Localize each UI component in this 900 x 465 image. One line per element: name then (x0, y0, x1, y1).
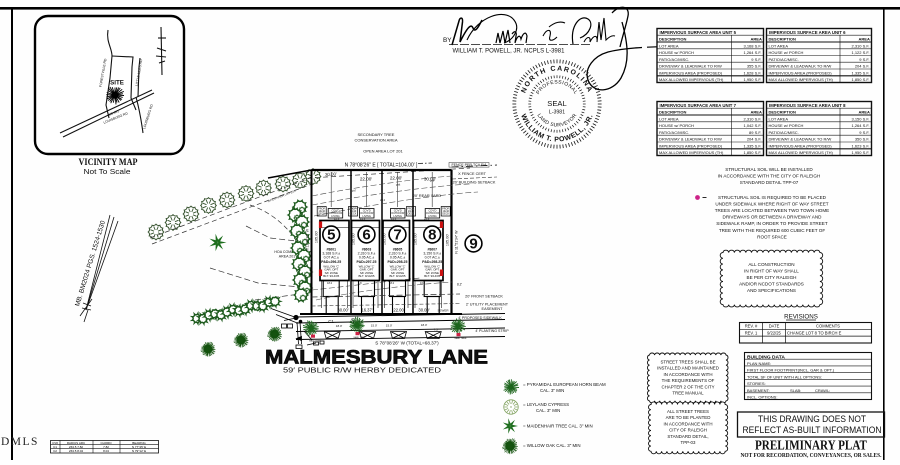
svg-text:6.8: 6.8 (358, 281, 362, 285)
svg-text:MAX ALLOWED IMPERVIOUS (TH): MAX ALLOWED IMPERVIOUS (TH) (769, 150, 834, 155)
svg-text:STREET TREES SHALL BE: STREET TREES SHALL BE (660, 360, 715, 365)
svg-text:S 78°08'26" W (TOTAL=68.37': S 78°08'26" W (TOTAL=68.37') (375, 340, 439, 345)
svg-text:8.04: 8.04 (103, 449, 109, 453)
svg-text:SEWER: SEWER (437, 309, 449, 313)
svg-text:CRAWL:: CRAWL: (815, 388, 830, 393)
svg-text:BUILDING DATA: BUILDING DATA (747, 354, 785, 360)
svg-text:C1: C1 (328, 319, 334, 324)
svg-text:89 S.F.: 89 S.F. (749, 130, 761, 135)
svg-text:22.00': 22.00' (360, 176, 372, 181)
svg-text:= PYRAMIDAL EUROPEAN HORN: = PYRAMIDAL EUROPEAN HORN BEAM (523, 382, 606, 387)
svg-text:ROOT SPACE: ROOT SPACE (757, 234, 787, 239)
svg-text:105.00': 105.00' (352, 233, 356, 246)
svg-text:1,628 S.F.: 1,628 S.F. (743, 70, 761, 75)
svg-text:CITY OF RALEIGH: CITY OF RALEIGH (669, 428, 707, 433)
svg-text:AND/OR NCDOT STANDARDS: AND/OR NCDOT STANDARDS (739, 282, 804, 287)
svg-text:DMLS: DMLS (1, 436, 39, 448)
svg-text:LOT AREA: LOT AREA (659, 43, 679, 48)
svg-text:204 S.F.: 204 S.F. (855, 64, 870, 69)
svg-text:HOUSE w/ PORCH: HOUSE w/ PORCH (769, 123, 804, 128)
svg-text:MAX ALLOWED IMPERVIOUS (TH): MAX ALLOWED IMPERVIOUS (TH) (769, 77, 834, 82)
svg-text:9/22/25: 9/22/25 (767, 330, 781, 335)
svg-text:355 S.F.: 355 S.F. (747, 64, 762, 69)
svg-text:BLT: 9/14/05: BLT: 9/14/05 (389, 274, 405, 278)
svg-text:21.3: 21.3 (391, 216, 397, 220)
svg-text:LOT AREA: LOT AREA (769, 43, 789, 48)
svg-text:7: 7 (393, 227, 401, 244)
svg-text:2,310 S.F.: 2,310 S.F. (743, 116, 761, 121)
svg-text:Not To Scale: Not To Scale (84, 169, 131, 176)
svg-text:FENCE PER TCA F/A: FENCE PER TCA F/A (451, 163, 487, 167)
svg-text:1,264 S.F.: 1,264 S.F. (743, 50, 761, 55)
svg-text:BLT: 9/14/05: BLT: 9/14/05 (358, 274, 374, 278)
svg-text:18.0': 18.0' (336, 324, 343, 328)
svg-text:REFLECT AS-BUILT INFORMATION: REFLECT AS-BUILT INFORMATION (743, 425, 882, 436)
svg-text:LIVING: LIVING (428, 214, 437, 218)
svg-text:DRIVEWAY & LEADWALK TO R/W: DRIVEWAY & LEADWALK TO R/W (769, 64, 832, 69)
svg-text:BLT: 9/14/05: BLT: 9/14/05 (323, 274, 339, 278)
svg-text:MAID TREE: MAID TREE (455, 337, 467, 340)
svg-text:30.00': 30.00' (418, 308, 429, 313)
svg-text:4' PROPOSED SIDEWALK: 4' PROPOSED SIDEWALK (458, 316, 502, 320)
svg-text:MAX ALLOWED IMPERVIOUS (TH): MAX ALLOWED IMPERVIOUS (TH) (659, 77, 724, 82)
svg-text:16.2: 16.2 (420, 281, 426, 285)
svg-text:STANDARD DETAIL TPP-07: STANDARD DETAIL TPP-07 (740, 180, 799, 185)
svg-text:TPP-03: TPP-03 (681, 440, 696, 445)
svg-text:N 11°51'34" W: N 11°51'34" W (455, 230, 459, 254)
svg-text:THE REQUIREMENTS OF: THE REQUIREMENTS OF (662, 378, 715, 383)
svg-text:30.00': 30.00' (424, 176, 436, 181)
svg-text:105.00': 105.00' (383, 233, 387, 246)
svg-text:5: 5 (327, 227, 335, 244)
svg-text:DRIVEWAY & LEADWALK TO R/W: DRIVEWAY & LEADWALK TO R/W (769, 137, 832, 142)
svg-text:25.3: 25.3 (424, 216, 430, 220)
svg-text:IMPERVIOUS AREA (PROPOSED): IMPERVIOUS AREA (PROPOSED) (659, 70, 723, 75)
svg-text:15.0': 15.0' (386, 323, 393, 327)
svg-text:CONSERVATION AREA: CONSERVATION AREA (354, 138, 397, 143)
svg-text:18.2: 18.2 (327, 281, 333, 285)
svg-text:CHANGE LOT 8 TO BIRCH E: CHANGE LOT 8 TO BIRCH E (787, 330, 842, 335)
svg-text:9 S.F.: 9 S.F. (859, 57, 869, 62)
svg-text:8: 8 (428, 227, 436, 244)
svg-text:105.00': 105.00' (315, 231, 319, 244)
svg-text:DESCRIPTION: DESCRIPTION (659, 37, 686, 42)
svg-text:= LEYLAND CYPRESS: = LEYLAND CYPRESS (523, 402, 569, 407)
svg-text:= MAIDENHAIR TREE CAL. 3": = MAIDENHAIR TREE CAL. 3" MIN (523, 424, 593, 429)
svg-text:PLAN NAME:: PLAN NAME: (747, 361, 771, 366)
svg-text:6: 6 (362, 227, 370, 244)
svg-text:IMPERVIOUS SURFACE AREA UNI: IMPERVIOUS SURFACE AREA UNIT 5 (660, 30, 737, 35)
svg-text:AREA: AREA (859, 37, 870, 42)
svg-text:PATIO/AC/MISC.: PATIO/AC/MISC. (659, 57, 689, 62)
svg-text:MAID TREE: MAID TREE (354, 336, 366, 339)
svg-text:IN ACCORDANCE WITH: IN ACCORDANCE WITH (663, 372, 712, 377)
svg-text:DECK: DECK (350, 213, 357, 216)
svg-text:DESCRIPTION: DESCRIPTION (769, 37, 796, 42)
svg-text:1,335 S.F.: 1,335 S.F. (851, 70, 869, 75)
svg-text:30.00': 30.00' (337, 308, 348, 313)
svg-text:VICINITY MAP: VICINITY MAP (79, 157, 138, 167)
svg-text:1,623 S.F.: 1,623 S.F. (851, 143, 869, 148)
svg-text:TOTAL SF OF UNIT WITH ALL OPTI: TOTAL SF OF UNIT WITH ALL OPTIONS: (747, 374, 822, 379)
svg-text:IMPERVIOUS AREA (PROPOSED): IMPERVIOUS AREA (PROPOSED) (769, 70, 833, 75)
svg-text:PAD=296.25: PAD=296.25 (321, 260, 341, 264)
svg-text:PAD=298.25: PAD=298.25 (422, 260, 442, 264)
svg-text:18.2: 18.2 (389, 281, 395, 285)
svg-text:PRELIMINARY PLAT: PRELIMINARY PLAT (755, 438, 867, 453)
svg-text:AREA 201: AREA 201 (279, 255, 296, 259)
svg-text:AREA: AREA (859, 110, 870, 115)
svg-text:1,122 S.F.: 1,122 S.F. (851, 50, 869, 55)
svg-text:WILLIAM T. POWELL, JR. NCP: WILLIAM T. POWELL, JR. NCPLS L-3981 (453, 49, 566, 55)
svg-text:2,310 S.F.: 2,310 S.F. (851, 43, 869, 48)
svg-text:SIDEWALK RAMP, IN ORDER TO: SIDEWALK RAMP, IN ORDER TO PROVIDE STREE… (716, 221, 828, 226)
svg-text:REVISIONS: REVISIONS (784, 314, 818, 321)
svg-text:SLAB:: SLAB: (790, 388, 801, 393)
svg-text:INCL. OPTIONS:: INCL. OPTIONS: (747, 395, 777, 400)
svg-text:1,950 S.F.: 1,950 S.F. (851, 150, 869, 155)
svg-text:COMMENTS: COMMENTS (816, 324, 840, 329)
svg-text:59′ PUBLIC R/W HERBY DED: 59′ PUBLIC R/W HERBY DEDICATED (283, 365, 441, 374)
svg-text:HOUSE w/ PORCH: HOUSE w/ PORCH (659, 123, 694, 128)
svg-text:204 S.F.: 204 S.F. (747, 137, 762, 142)
svg-text:SECONDARY TREE: SECONDARY TREE (358, 132, 395, 137)
svg-text:4' PLANTING STRIP: 4' PLANTING STRIP (475, 329, 509, 333)
svg-text:22.00': 22.00' (393, 308, 404, 313)
svg-text:DRIVEWAYS OR BETWEEN A DRI: DRIVEWAYS OR BETWEEN A DRIVEWAY AND (723, 215, 823, 220)
svg-text:DESCRIPTION: DESCRIPTION (659, 110, 686, 115)
svg-text:350 S.F.: 350 S.F. (855, 137, 870, 142)
svg-text:CHAPTER 2 OF THE CITY: CHAPTER 2 OF THE CITY (661, 384, 714, 389)
svg-text:1,950 S.F.: 1,950 S.F. (743, 77, 761, 82)
svg-text:IN RIGHT OF WAY SHALL: IN RIGHT OF WAY SHALL (744, 269, 799, 274)
svg-text:HOUSE w/ PORCH: HOUSE w/ PORCH (659, 50, 694, 55)
svg-text:CAL. 3" MIN: CAL. 3" MIN (536, 408, 560, 413)
svg-text:105.00': 105.00' (446, 234, 450, 247)
svg-text:STORIES:: STORIES: (747, 381, 766, 386)
svg-text:INSTALLED AND MAINTAINED: INSTALLED AND MAINTAINED (657, 366, 719, 371)
svg-text:STRUCTURAL SOIL IS REQUIRED: STRUCTURAL SOIL IS REQUIRED TO BE PLACED (718, 195, 827, 200)
svg-text:STANDARD DETAIL,: STANDARD DETAIL, (667, 434, 708, 439)
svg-text:EASEMENT: EASEMENT (482, 307, 504, 311)
svg-text:BY: BY (443, 37, 452, 44)
svg-text:21.3: 21.3 (360, 216, 366, 220)
svg-text:X FENCE CERT: X FENCE CERT (458, 172, 486, 176)
svg-text:L-3981: L-3981 (549, 110, 565, 116)
svg-text:PATIO/AC/MISC.: PATIO/AC/MISC. (769, 130, 799, 135)
svg-text:DRIVEWAY & LEADWALK TO R/W: DRIVEWAY & LEADWALK TO R/W (659, 64, 722, 69)
svg-text:STRUCTURAL SOIL WILL BE IN: STRUCTURAL SOIL WILL BE INSTALLED (725, 167, 813, 172)
svg-text:N 11°30'46" W: N 11°30'46" W (306, 228, 310, 251)
svg-text:DRIVEWAY & LEADWALK TO R/W: DRIVEWAY & LEADWALK TO R/W (659, 137, 722, 142)
svg-text:AND SPECIFICATIONS: AND SPECIFICATIONS (747, 288, 796, 293)
svg-text:C2: C2 (53, 449, 57, 453)
svg-text:9: 9 (469, 236, 477, 253)
svg-text:IMPERVIOUS AREA (PROPOSED): IMPERVIOUS AREA (PROPOSED) (769, 143, 833, 148)
svg-text:ALL CONSTRUCTION: ALL CONSTRUCTION (748, 262, 794, 267)
svg-text:7.5': 7.5' (434, 328, 439, 332)
svg-text:UNDER SIDEWALK WHERE RIGHT: UNDER SIDEWALK WHERE RIGHT OF WAY STREET (715, 202, 828, 207)
svg-text:BASEMENT:: BASEMENT: (747, 388, 770, 393)
svg-text:ALL STREET TREES: ALL STREET TREES (667, 409, 709, 414)
svg-text:LOT AREA: LOT AREA (769, 116, 789, 121)
svg-text:DECK: DECK (318, 213, 325, 216)
svg-text:9 S.F.: 9 S.F. (751, 57, 761, 62)
svg-text:9 S.F.: 9 S.F. (859, 130, 869, 135)
svg-text:2' UTILITY PLACEMENT: 2' UTILITY PLACEMENT (466, 303, 509, 307)
svg-text:8.2′: 8.2′ (457, 283, 462, 287)
svg-text:1,042 S.F.: 1,042 S.F. (743, 123, 761, 128)
svg-text:CAL. 3" MIN: CAL. 3" MIN (540, 388, 564, 393)
svg-text:HOUSE w/ PORCH: HOUSE w/ PORCH (769, 50, 804, 55)
svg-text:TREE WITH THE REQUIRED 600: TREE WITH THE REQUIRED 600 CUBIC FEET OF (719, 228, 825, 233)
svg-text:20' BUILDING SETBACK: 20' BUILDING SETBACK (453, 181, 496, 185)
svg-text:IMPERVIOUS SURFACE AREA UNI: IMPERVIOUS SURFACE AREA UNIT 6 (769, 30, 846, 35)
svg-text:30.00': 30.00' (325, 171, 337, 177)
svg-text:MAX ALLOWED IMPERVIOUS (TH): MAX ALLOWED IMPERVIOUS (TH) (659, 150, 724, 155)
svg-text:ARE TO BE PLANTED: ARE TO BE PLANTED (666, 415, 711, 420)
svg-text:LOT AREA: LOT AREA (659, 116, 679, 121)
svg-text:= WILLOW OAK CAL. 3" MIN: = WILLOW OAK CAL. 3" MIN (523, 443, 581, 448)
svg-text:TREES ARE LOCATED BETWEEN: TREES ARE LOCATED BETWEEN TWO TOWN HOME (715, 208, 830, 213)
svg-text:DECK: DECK (408, 213, 415, 216)
svg-text:AREA: AREA (751, 37, 762, 42)
svg-text:REV. 1: REV. 1 (745, 330, 758, 335)
svg-text:18.0': 18.0' (421, 323, 428, 327)
svg-text:29.2: 29.2 (380, 198, 386, 202)
svg-text:PAD=298.25: PAD=298.25 (388, 260, 408, 264)
svg-text:FIRST FLOOR FOOTPRINT(INCL. GA: FIRST FLOOR FOOTPRINT(INCL. GAR & OPT.) (747, 368, 835, 373)
svg-text:THIS DRAWING DOES NOT: THIS DRAWING DOES NOT (758, 414, 866, 425)
svg-text:263.5 8.04: 263.5 8.04 (69, 449, 84, 453)
svg-text:DATE: DATE (769, 324, 780, 329)
svg-text:1,850 S.F.: 1,850 S.F. (743, 150, 761, 155)
svg-text:PAD=297.25: PAD=297.25 (357, 260, 377, 264)
svg-text:IMPERVIOUS SURFACE AREA UNI: IMPERVIOUS SURFACE AREA UNIT 7 (660, 103, 737, 108)
svg-text:SEAL: SEAL (547, 99, 566, 108)
svg-text:3,150 S.F.: 3,150 S.F. (851, 116, 869, 121)
svg-text:25.3: 25.3 (334, 216, 340, 220)
svg-text:DESCRIPTION: DESCRIPTION (769, 110, 796, 115)
svg-text:IMPERVIOUS AREA (PROPOSED): IMPERVIOUS AREA (PROPOSED) (659, 143, 723, 148)
svg-text:1,264 S.F.: 1,264 S.F. (851, 123, 869, 128)
svg-text:N 78°08'26" E [ TOTAL=104.0: N 78°08'26" E [ TOTAL=104.00' ] (345, 163, 418, 169)
svg-text:20' FRONT SETBACK: 20' FRONT SETBACK (465, 295, 503, 299)
svg-text:OPEN AREA LOT 201: OPEN AREA LOT 201 (363, 149, 403, 154)
svg-text:20' REAR YARD: 20' REAR YARD (413, 193, 442, 198)
svg-text:MAID TREE: MAID TREE (309, 340, 321, 343)
svg-text:N 79°12′ E: N 79°12′ E (132, 449, 146, 453)
svg-text:IN ACCORDANCE WITH THE CIT: IN ACCORDANCE WITH THE CITY OF RALEIGH (718, 174, 820, 179)
svg-text:22.00': 22.00' (390, 175, 402, 180)
svg-text:SITE: SITE (110, 80, 124, 87)
svg-text:3,168 S.F.: 3,168 S.F. (743, 43, 761, 48)
svg-text:16.37': 16.37' (361, 308, 372, 313)
svg-text:1,850 S.F.: 1,850 S.F. (851, 77, 869, 82)
svg-text:IN ACCORDANCE WITH: IN ACCORDANCE WITH (663, 421, 712, 426)
svg-text:PATIO/AC/MISC.: PATIO/AC/MISC. (659, 130, 689, 135)
svg-text:BLT: 9/14/05: BLT: 9/14/05 (424, 274, 440, 278)
svg-text:1,335 S.F.: 1,335 S.F. (743, 143, 761, 148)
svg-text:TREE MANUAL: TREE MANUAL (672, 391, 704, 396)
svg-text:BE PER CITY RALEIGH: BE PER CITY RALEIGH (747, 275, 797, 280)
svg-text:AREA: AREA (751, 110, 762, 115)
svg-text:PATIO/AC/MISC.: PATIO/AC/MISC. (769, 57, 799, 62)
svg-text:105.00': 105.00' (414, 233, 418, 246)
svg-text:NOT FOR RECORDATION, CONVEYANC: NOT FOR RECORDATION, CONVEYANCES, OR SAL… (741, 452, 882, 459)
svg-text:DECK: DECK (442, 213, 449, 216)
svg-text:REV. #: REV. # (745, 324, 758, 329)
svg-text:15.0': 15.0' (371, 324, 378, 328)
svg-text:IMPERVIOUS SURFACE AREA UNI: IMPERVIOUS SURFACE AREA UNIT 8 (769, 103, 846, 108)
